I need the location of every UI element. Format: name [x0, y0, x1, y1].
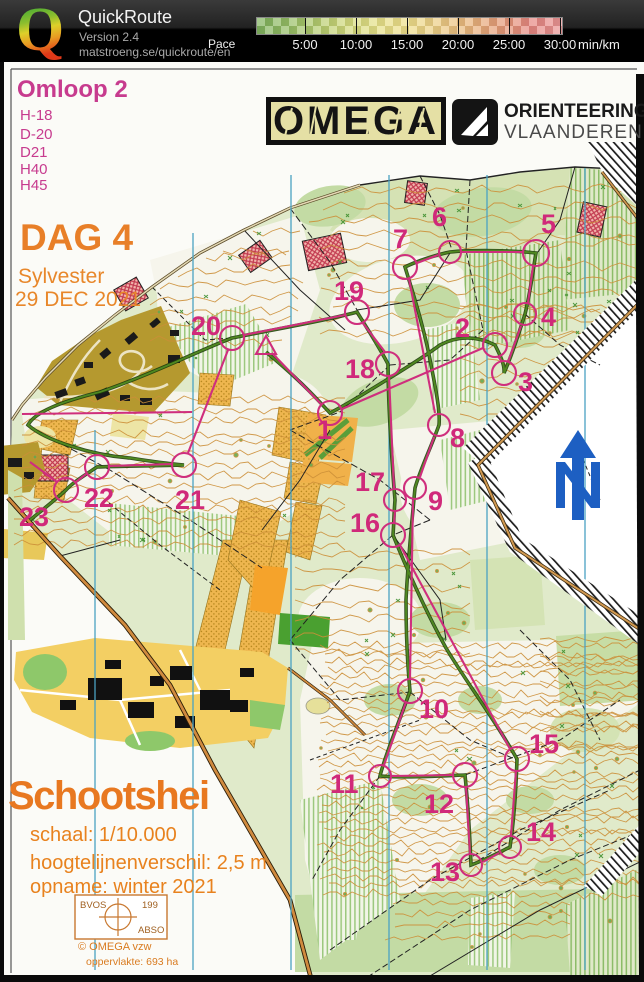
svg-text:7: 7 — [393, 224, 408, 254]
svg-text:10: 10 — [419, 694, 449, 724]
svg-text:11: 11 — [330, 769, 359, 799]
svg-text:8: 8 — [450, 423, 465, 453]
svg-text:199: 199 — [142, 900, 158, 911]
svg-text:opname: winter 2021: opname: winter 2021 — [30, 876, 217, 898]
svg-text:Sylvester: Sylvester — [18, 265, 104, 288]
svg-text:19: 19 — [334, 276, 364, 306]
svg-text:Schootshei: Schootshei — [8, 774, 209, 818]
svg-text:D-20: D-20 — [20, 126, 53, 143]
svg-text:ORIENTEERING: ORIENTEERING — [504, 101, 644, 122]
svg-text:14: 14 — [526, 817, 556, 847]
svg-text:16: 16 — [350, 508, 380, 538]
svg-text:H40: H40 — [20, 161, 48, 178]
svg-text:13: 13 — [430, 857, 460, 887]
svg-text:15: 15 — [529, 729, 559, 759]
svg-text:DAG 4: DAG 4 — [20, 217, 134, 258]
svg-text:D21: D21 — [20, 144, 48, 161]
svg-text:21: 21 — [175, 485, 205, 515]
svg-text:hoogtelijnenverschil: 2,5 m: hoogtelijnenverschil: 2,5 m — [30, 852, 267, 874]
svg-text:© OMEGA vzw: © OMEGA vzw — [78, 941, 152, 953]
svg-text:VLAANDEREN: VLAANDEREN — [504, 122, 643, 143]
svg-text:H-18: H-18 — [20, 107, 53, 124]
svg-text:schaal: 1/10.000: schaal: 1/10.000 — [30, 824, 177, 846]
svg-text:9: 9 — [428, 486, 443, 516]
svg-text:BVOS: BVOS — [80, 900, 106, 911]
svg-text:OMEGA: OMEGA — [273, 99, 439, 143]
svg-text:18: 18 — [345, 354, 375, 384]
svg-text:17: 17 — [355, 467, 385, 497]
svg-text:22: 22 — [84, 483, 114, 513]
svg-text:1: 1 — [317, 415, 332, 445]
svg-text:6: 6 — [432, 202, 447, 232]
svg-text:20: 20 — [191, 311, 221, 341]
svg-text:H45: H45 — [20, 177, 48, 194]
svg-text:12: 12 — [424, 789, 454, 819]
svg-text:ABSO: ABSO — [138, 925, 164, 936]
svg-text:Omloop 2: Omloop 2 — [17, 76, 128, 103]
svg-text:Q: Q — [16, 0, 64, 62]
svg-text:5: 5 — [541, 209, 556, 239]
svg-text:4: 4 — [541, 302, 556, 332]
svg-text:oppervlakte: 693 ha: oppervlakte: 693 ha — [86, 956, 178, 968]
svg-text:3: 3 — [518, 367, 533, 397]
svg-text:2: 2 — [455, 313, 470, 343]
svg-text:23: 23 — [19, 502, 49, 532]
svg-text:29 DEC 2021: 29 DEC 2021 — [15, 288, 141, 311]
